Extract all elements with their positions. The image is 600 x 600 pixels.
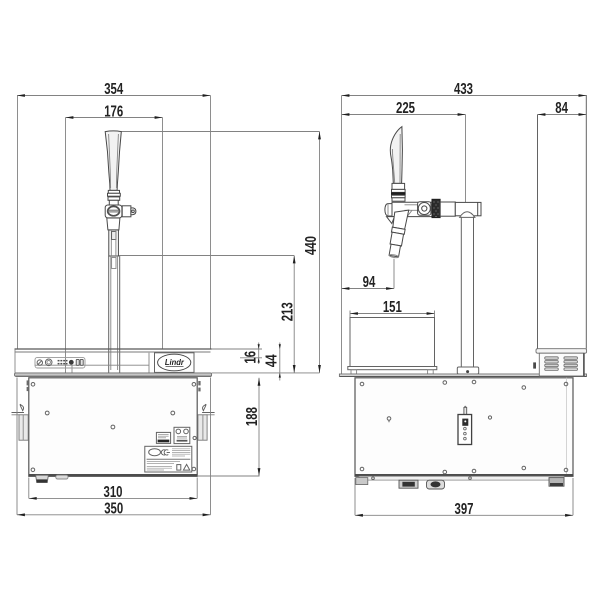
svg-text:94: 94 — [363, 273, 376, 290]
svg-text:225: 225 — [396, 99, 415, 116]
svg-text:354: 354 — [104, 80, 123, 97]
svg-text:Lindr: Lindr — [165, 358, 185, 367]
svg-text:16: 16 — [242, 351, 259, 364]
svg-text:84: 84 — [555, 99, 568, 116]
svg-text:151: 151 — [383, 298, 402, 315]
svg-text:310: 310 — [104, 483, 123, 500]
svg-text:397: 397 — [455, 500, 474, 517]
svg-text:188: 188 — [243, 407, 260, 426]
svg-text:176: 176 — [104, 103, 123, 120]
svg-text:213: 213 — [279, 302, 296, 321]
svg-text:433: 433 — [454, 80, 473, 97]
svg-text:44: 44 — [263, 354, 280, 367]
svg-text:350: 350 — [104, 500, 123, 517]
svg-text:440: 440 — [302, 236, 319, 255]
